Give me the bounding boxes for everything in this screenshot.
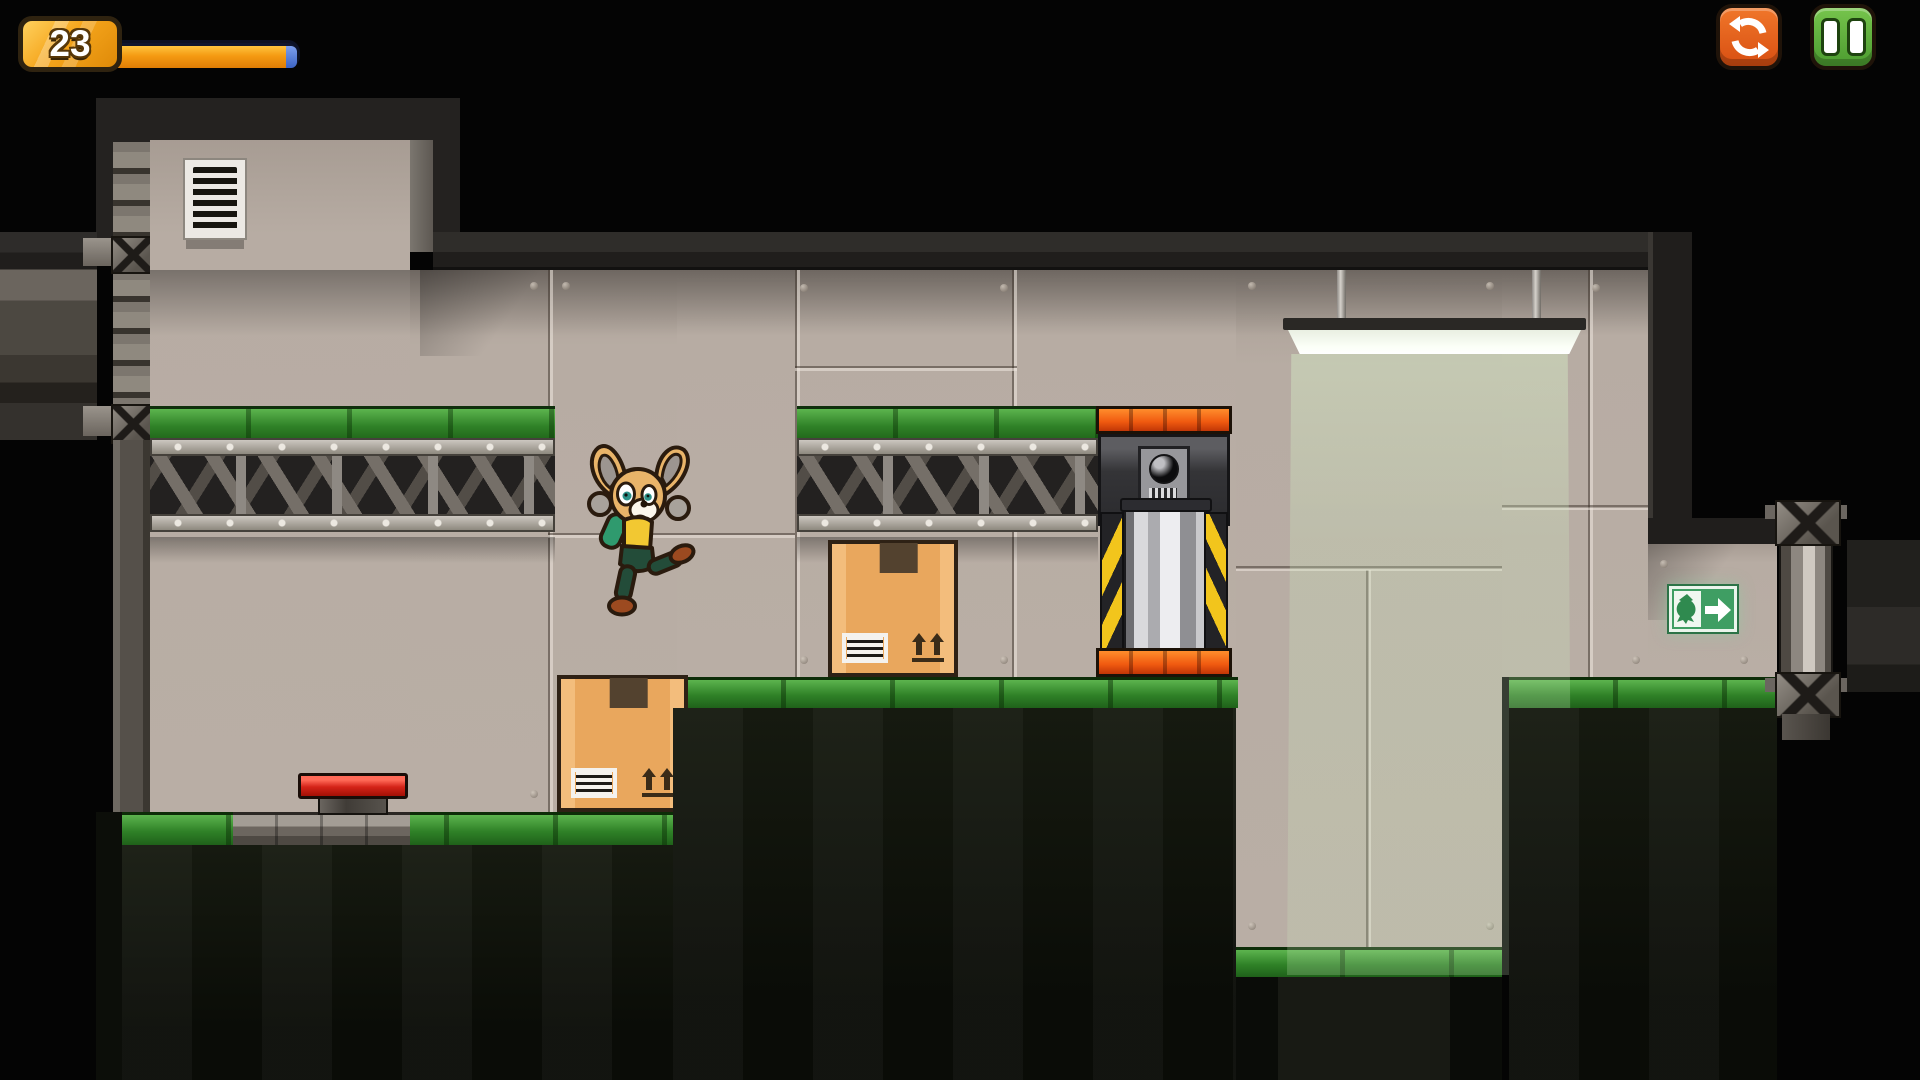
rivet <box>1248 922 1256 930</box>
girder-cast-shadow <box>150 537 555 563</box>
box-tape <box>880 543 918 573</box>
lamp-bar <box>1283 318 1586 330</box>
vent-slats <box>193 167 237 231</box>
game-viewport[interactable]: 23 <box>0 0 1920 1080</box>
rivet <box>1632 656 1640 664</box>
rivet <box>530 282 538 290</box>
pause-button[interactable] <box>1810 4 1876 70</box>
girder-platform-mid <box>797 406 1098 537</box>
restart-button[interactable] <box>1716 4 1782 70</box>
rivet <box>800 284 808 292</box>
rivet <box>1000 656 1008 664</box>
this-side-up-arrows-icon <box>640 766 676 800</box>
rivet <box>530 790 538 798</box>
right-wall-border <box>1648 232 1692 540</box>
vent-shadow <box>186 240 244 249</box>
under-floor-shadow-right <box>1509 708 1777 1080</box>
progress-remainder <box>286 46 297 68</box>
restart-circular-arrows-icon <box>1727 15 1771 59</box>
under-floor-shadow-mid <box>673 708 1236 1080</box>
ceiling-lower-band <box>433 252 1692 270</box>
floor-button-base <box>318 797 388 815</box>
panel-seam <box>1588 270 1593 677</box>
under-floor-shadow-left <box>122 845 673 1080</box>
exit-door-bottom-block <box>1775 672 1841 718</box>
rivet <box>1486 282 1494 290</box>
hazard-pillar-right <box>1204 512 1228 652</box>
door-side-tab <box>1765 505 1775 519</box>
exit-door-slide <box>1779 542 1833 674</box>
ceiling-upper-face <box>433 232 1692 252</box>
rivet <box>1592 284 1600 292</box>
progress-fill <box>106 46 286 68</box>
player-character <box>578 438 700 628</box>
crusher <box>1096 406 1232 677</box>
pause-icon <box>1821 18 1840 56</box>
shipping-label <box>571 768 617 798</box>
tower-frame-right-lit <box>410 140 433 252</box>
floor-mid <box>677 677 1238 708</box>
girder-web <box>797 456 1098 514</box>
girder-bottom-rail <box>797 514 1098 532</box>
pause-icon <box>1847 18 1866 56</box>
lamp-pole <box>1337 270 1346 322</box>
rivet <box>1000 284 1008 292</box>
camera-lens-icon <box>1149 454 1179 484</box>
rivet <box>800 656 808 664</box>
platform-green-top <box>150 406 555 438</box>
shipping-label <box>842 633 888 663</box>
door-side-tab <box>1765 678 1775 692</box>
girder-top-rail <box>150 438 555 456</box>
exit-door-top-block <box>1775 500 1841 546</box>
panel-seam <box>795 366 1017 371</box>
counter-value: 23 <box>49 23 90 65</box>
camera-vents <box>1149 488 1177 498</box>
wall-column <box>113 142 150 440</box>
girder-top-rail <box>797 438 1098 456</box>
pit-under-shadow <box>1236 977 1502 1080</box>
tower-frame-top <box>96 98 460 142</box>
exit-fox-pictogram <box>1674 591 1701 627</box>
progress-bar <box>100 40 300 68</box>
rivet <box>1660 560 1668 568</box>
floor-button-red-cap <box>298 773 408 799</box>
platform-green-top <box>797 406 1098 438</box>
air-vent-icon <box>183 158 247 240</box>
cardboard-box-upper <box>828 540 958 677</box>
lamp-pole <box>1532 270 1541 322</box>
exit-door-stub <box>1782 714 1830 740</box>
rivet <box>562 282 570 290</box>
girder-platform-left <box>150 406 555 537</box>
piston-cylinder <box>1124 505 1208 655</box>
wall-column-lower <box>113 440 150 812</box>
under-column-shadow <box>96 812 122 1080</box>
hazard-pillar-left <box>1100 512 1124 652</box>
piston-top-cap <box>1120 498 1212 512</box>
this-side-up-arrows-icon <box>910 631 946 665</box>
rivet <box>1248 282 1256 290</box>
exit-passage <box>1847 540 1920 692</box>
hazard-band-top <box>1096 406 1232 434</box>
button-platform <box>233 812 410 845</box>
girder-bottom-rail <box>150 514 555 532</box>
counter-badge: 23 <box>18 16 122 72</box>
tower-frame-right <box>433 98 460 252</box>
lamp-panel <box>1288 330 1581 354</box>
cardboard-box-lower <box>557 675 688 812</box>
alcove-top-band <box>1648 518 1780 544</box>
girder-web <box>150 456 555 514</box>
box-tape <box>609 678 647 708</box>
rivet <box>1740 656 1748 664</box>
hazard-band-bottom <box>1096 648 1232 677</box>
camera-sensor <box>1138 446 1190 504</box>
exit-arrow-icon <box>1703 596 1733 624</box>
exit-sign <box>1667 584 1739 634</box>
